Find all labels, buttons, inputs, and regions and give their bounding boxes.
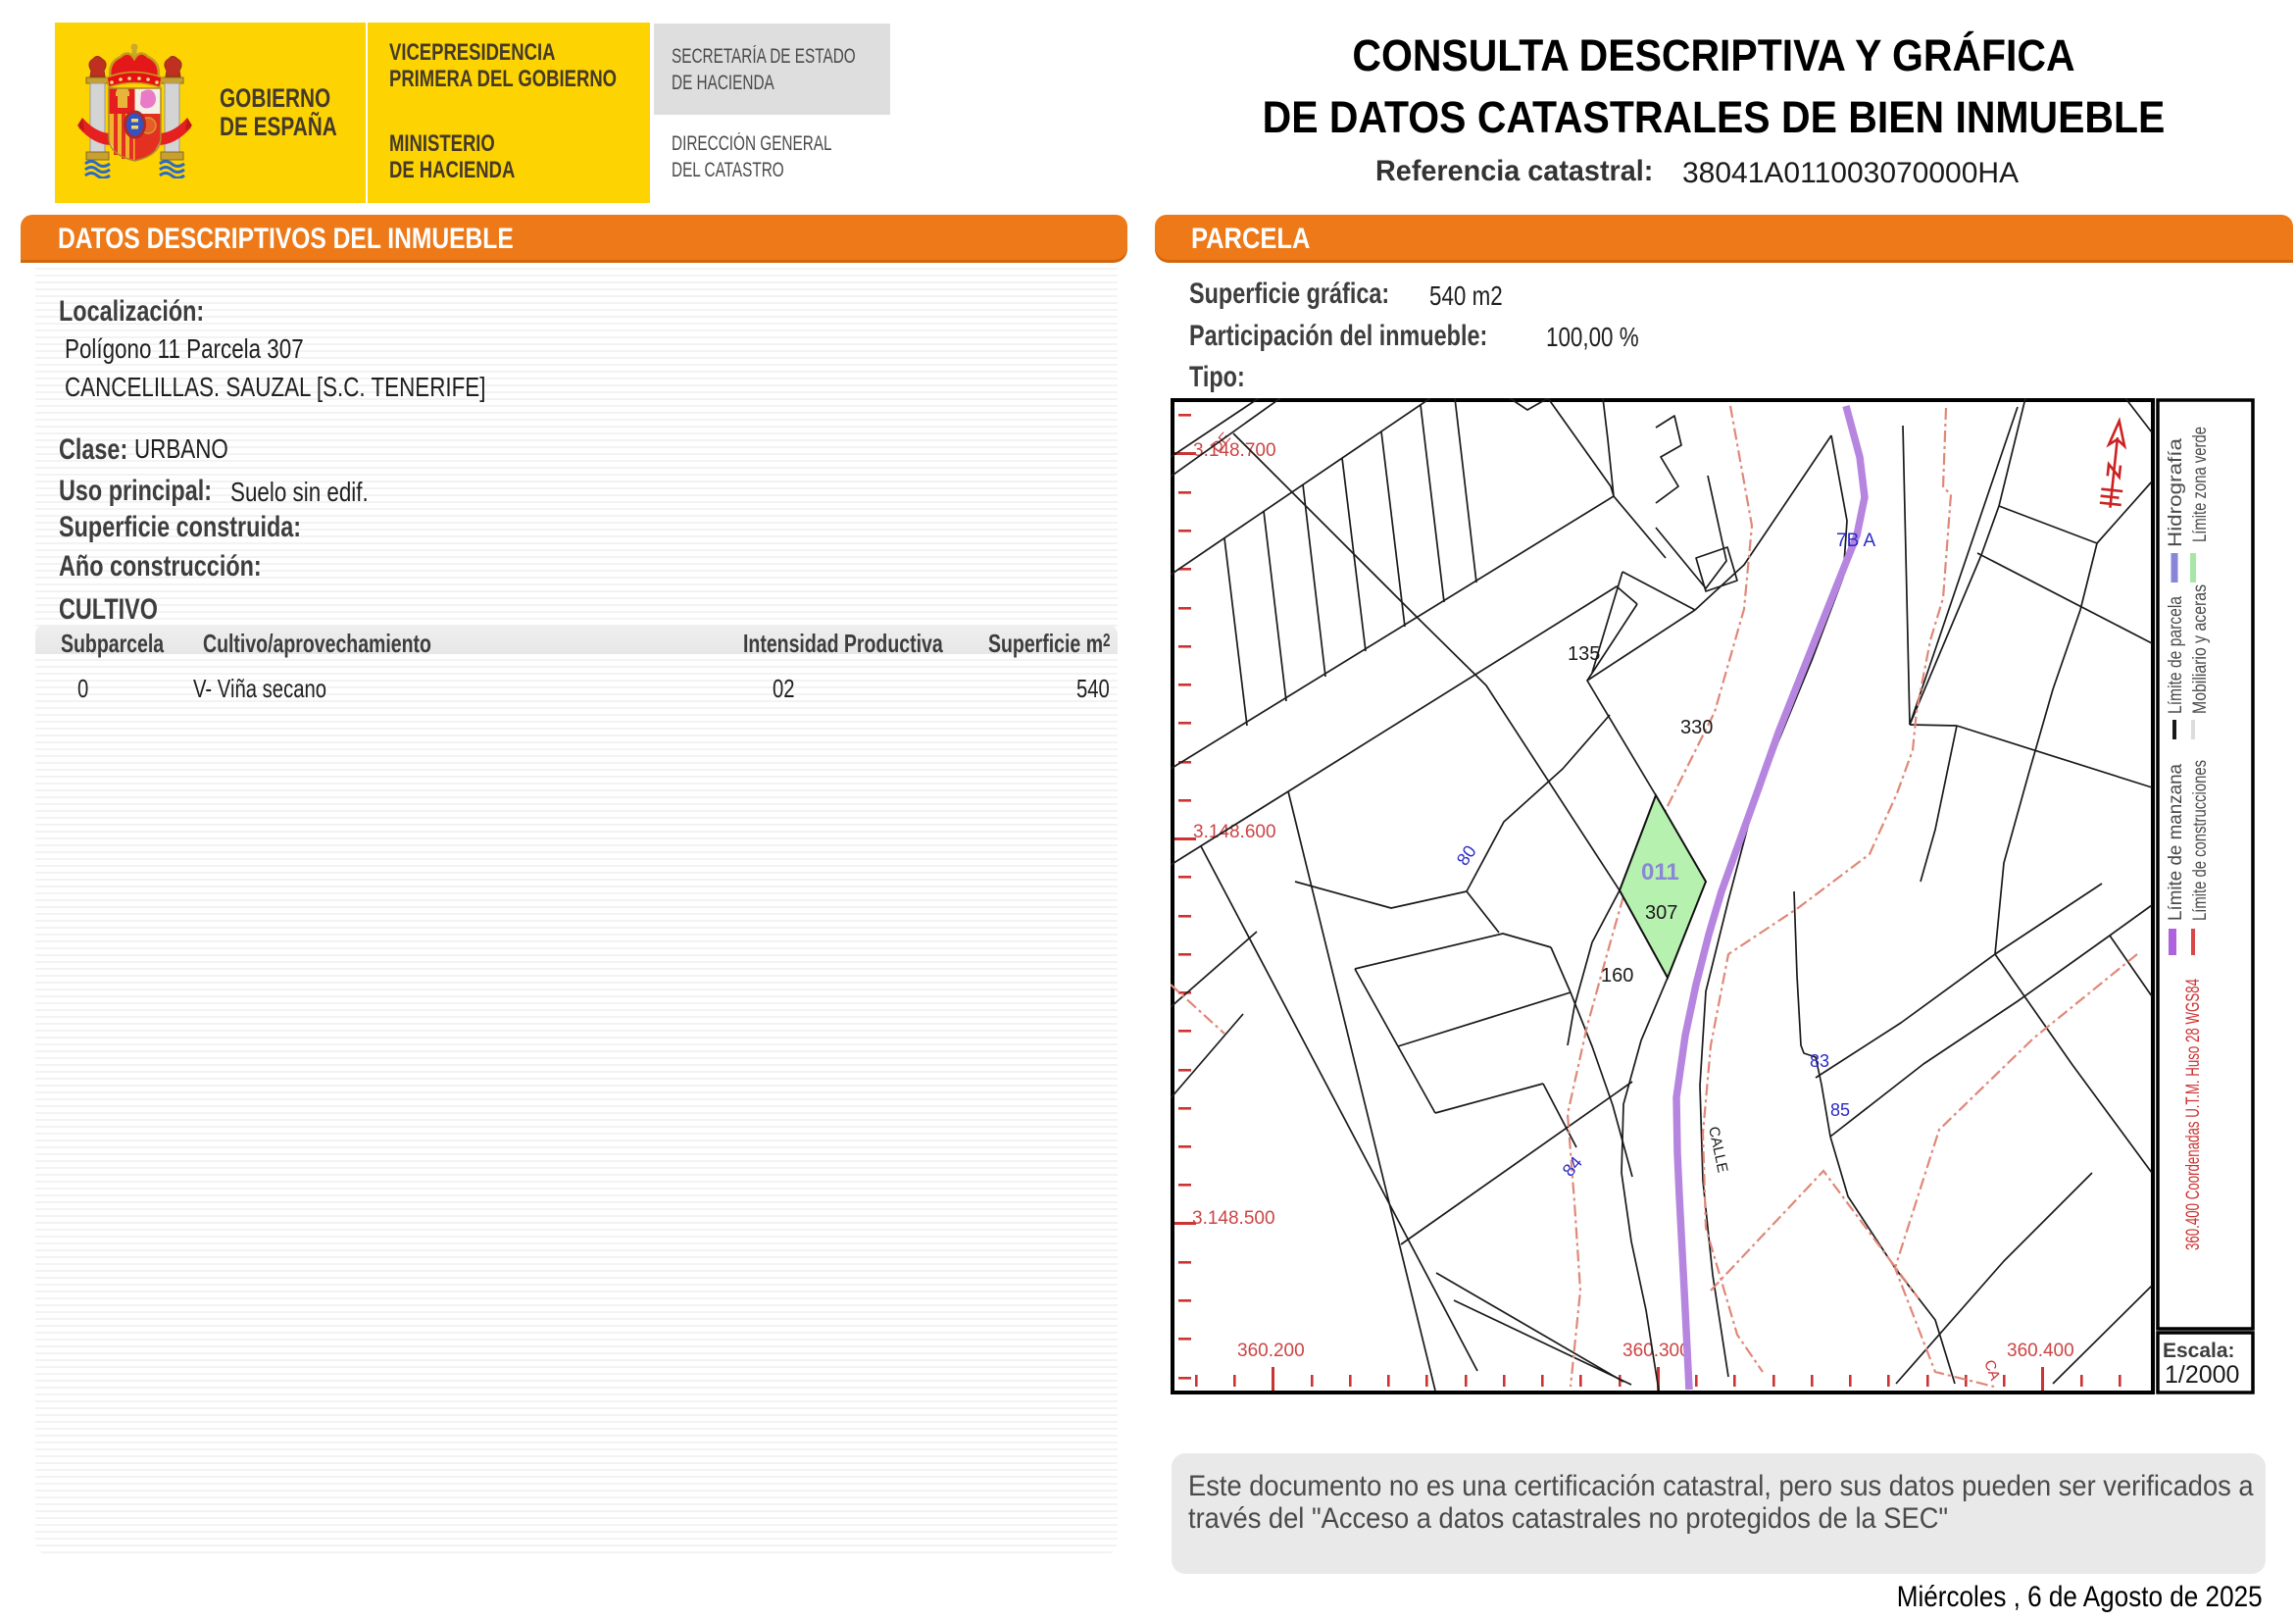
svg-text:330: 330: [1680, 717, 1713, 738]
svg-text:360.400: 360.400: [2007, 1341, 2074, 1361]
svg-text:011: 011: [1641, 859, 1679, 886]
svg-text:83: 83: [1810, 1051, 1829, 1071]
svg-text:160: 160: [1601, 965, 1633, 987]
svg-text:307: 307: [1645, 902, 1677, 924]
svg-text:Límite zona verde: Límite zona verde: [2190, 427, 2211, 542]
svg-text:1/2000: 1/2000: [2165, 1361, 2239, 1389]
svg-text:Hidrografía: Hidrografía: [2166, 438, 2186, 547]
svg-text:3.148.500: 3.148.500: [1192, 1208, 1275, 1229]
svg-text:7B A: 7B A: [1836, 531, 1875, 551]
svg-text:Escala:: Escala:: [2163, 1340, 2235, 1362]
svg-text:Límite de construcciones: Límite de construcciones: [2190, 760, 2211, 921]
svg-text:135: 135: [1568, 643, 1600, 665]
svg-text:85: 85: [1830, 1100, 1850, 1120]
svg-text:360.300: 360.300: [1622, 1341, 1690, 1361]
svg-text:Mobiliario y aceras: Mobiliario y aceras: [2190, 584, 2211, 714]
svg-text:Límite de manzana: Límite de manzana: [2166, 764, 2186, 921]
svg-text:Límite de parcela: Límite de parcela: [2166, 596, 2186, 714]
svg-text:360.200: 360.200: [1237, 1341, 1305, 1361]
svg-text:360.400 Coordenadas U.T.M. Hus: 360.400 Coordenadas U.T.M. Huso 28 WGS84: [2183, 979, 2204, 1250]
